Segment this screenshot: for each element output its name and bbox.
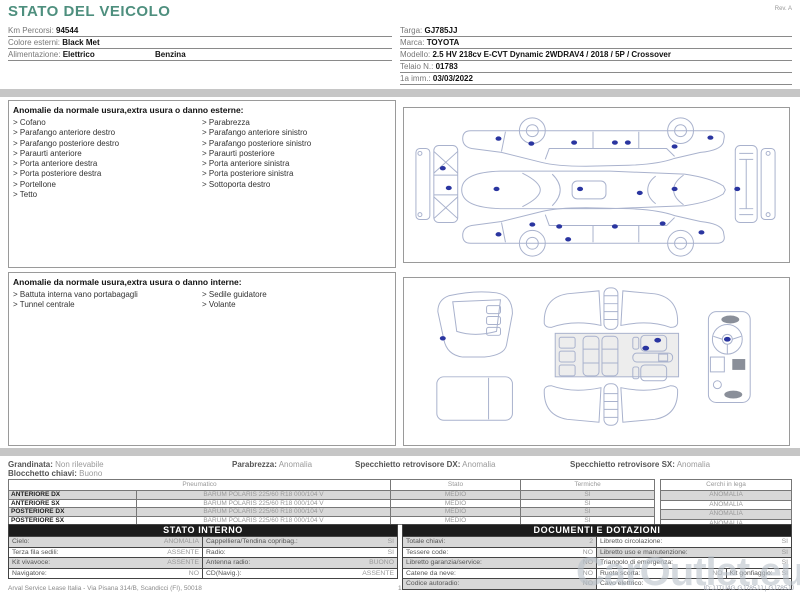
page-title: STATO DEL VEICOLO xyxy=(8,3,170,20)
key-lock-field: Blocchetto chiavi: Buono xyxy=(8,469,102,478)
parabrezza-field: Parabrezza: Anomalia xyxy=(232,460,312,469)
column-header-pneumatico: Pneumatico xyxy=(9,480,391,490)
first-registration-value: 03/03/2022 xyxy=(433,74,473,83)
interior-anomalies-left-column: Battuta interna vano portabagagli Tunnel… xyxy=(13,290,202,311)
footer-page-number: 1 xyxy=(398,585,402,592)
anomaly-item: Sottoporta destro xyxy=(202,180,352,190)
tire-row: POSTERIORE SX BARUM POLARIS 225/60 R18 0… xyxy=(9,516,654,525)
alloy-wheels-table: Cerchi in lega ANOMALIA ANOMALIA ANOMALI… xyxy=(660,479,792,529)
column-header-cerchi: Cerchi in lega xyxy=(661,480,791,490)
tire-row: POSTERIORE DX BARUM POLARIS 225/60 R18 0… xyxy=(9,507,654,516)
footer-document-id: ID:JJTU4G GJ785JJ | GJ785JJ xyxy=(703,585,794,592)
interior-anomalies-title: Anomalie da normale usura,extra usura o … xyxy=(9,273,395,290)
km-row: Km Percorsi: 94544 xyxy=(8,25,392,37)
color-value: Black Met xyxy=(62,38,99,47)
tire-table: Pneumatico Stato Termiche ANTERIORE DX B… xyxy=(8,479,655,525)
tire-row: ANTERIORE DX BARUM POLARIS 225/60 R18 00… xyxy=(9,490,654,499)
plate-row: Targa: GJ785JJ xyxy=(400,25,792,37)
anomaly-item: Parafango anteriore destro xyxy=(13,128,163,138)
footer-company: Arval Service Lease Italia - Via Pisana … xyxy=(8,585,202,592)
first-registration-label: 1a imm.: xyxy=(400,74,431,83)
column-header-termiche: Termiche xyxy=(521,480,654,490)
wheel-status-cell: ANOMALIA xyxy=(661,490,791,500)
anomaly-item: Portellone xyxy=(13,180,163,190)
documents-row: Totale chiavi:2 Libretto circolazione:SI xyxy=(403,536,791,547)
anomaly-item: Parafango posteriore sinistro xyxy=(202,139,352,149)
km-label: Km Percorsi: xyxy=(8,26,54,35)
fuel-row: Alimentazione: Elettrico Benzina xyxy=(8,49,392,61)
anomaly-item: Porta anteriore sinistra xyxy=(202,159,352,169)
tire-table-header: Pneumatico Stato Termiche xyxy=(9,480,654,490)
first-registration-row: 1a imm.: 03/03/2022 xyxy=(400,73,792,85)
grandinata-field: Grandinata: Non rilevabile xyxy=(8,460,104,469)
fuel-value-1: Elettrico xyxy=(63,50,95,59)
section-divider-bar xyxy=(0,89,800,97)
interior-status-row: Navigatore:NO CD(Navig.):ASSENTE xyxy=(9,568,397,579)
interior-status-row: Kit vivavoce:ASSENTE Antenna radio:BUONO xyxy=(9,557,397,568)
anomaly-item: Tetto xyxy=(13,190,163,200)
model-row: Modello: 2.5 HV 218cv E-CVT Dynamic 2WDR… xyxy=(400,49,792,61)
anomaly-item: Porta posteriore sinistra xyxy=(202,169,352,179)
plate-value: GJ785JJ xyxy=(424,26,457,35)
interior-damage-diagram xyxy=(404,278,789,445)
wheel-status-cell: ANOMALIA xyxy=(661,509,791,519)
documents-equipment-title: DOCUMENTI E DOTAZIONI xyxy=(403,525,791,536)
brand-value: TOYOTA xyxy=(427,38,460,47)
interior-status-table: STATO INTERNO Cielo:ANOMALIA Cappelliera… xyxy=(8,524,398,579)
anomaly-item: Battuta interna vano portabagagli xyxy=(13,290,163,300)
exterior-anomalies-panel: Anomalie da normale usura,extra usura o … xyxy=(8,100,396,268)
chassis-label: Telaio N.: xyxy=(400,62,433,71)
mirror-dx-field: Specchietto retrovisore DX: Anomalia xyxy=(355,460,496,469)
color-label: Colore esterni: xyxy=(8,38,60,47)
interior-status-row: Cielo:ANOMALIA Cappelliera/Tendina copri… xyxy=(9,536,397,547)
anomaly-item: Volante xyxy=(202,300,352,310)
fuel-label: Alimentazione: xyxy=(8,50,60,59)
exterior-damage-diagram xyxy=(404,108,789,262)
exterior-damage-diagram-panel xyxy=(403,107,790,263)
exterior-anomalies-right-column: Parabrezza Parafango anteriore sinistro … xyxy=(202,118,391,200)
plate-label: Targa: xyxy=(400,26,422,35)
vehicle-summary-right: Targa: GJ785JJ Marca: TOYOTA Modello: 2.… xyxy=(400,25,792,85)
anomaly-item: Paraurti posteriore xyxy=(202,149,352,159)
exterior-anomalies-title: Anomalie da normale usura,extra usura o … xyxy=(9,101,395,118)
km-value: 94544 xyxy=(56,26,78,35)
interior-anomalies-panel: Anomalie da normale usura,extra usura o … xyxy=(8,272,396,446)
interior-status-row: Terza fila sedili:ASSENTE Radio:SI xyxy=(9,547,397,558)
mirror-sx-field: Specchietto retrovisore SX: Anomalia xyxy=(570,460,710,469)
vehicle-report-page: STATO DEL VEICOLO Rev. A Km Percorsi: 94… xyxy=(0,0,800,600)
anomaly-item: Tunnel centrale xyxy=(13,300,163,310)
model-label: Modello: xyxy=(400,50,430,59)
brand-row: Marca: TOYOTA xyxy=(400,37,792,49)
interior-status-title: STATO INTERNO xyxy=(9,525,397,536)
anomaly-item: Parabrezza xyxy=(202,118,352,128)
brand-label: Marca: xyxy=(400,38,424,47)
anomaly-item: Porta posteriore destra xyxy=(13,169,163,179)
column-header-stato: Stato xyxy=(391,480,521,490)
anomaly-item: Parafango anteriore sinistro xyxy=(202,128,352,138)
anomaly-item: Parafango posteriore destro xyxy=(13,139,163,149)
fuel-value-2: Benzina xyxy=(155,50,186,59)
interior-anomalies-right-column: Sedile guidatore Volante xyxy=(202,290,391,311)
revision-label: Rev. A xyxy=(775,6,792,12)
condition-summary-line: Grandinata: Non rilevabile Parabrezza: A… xyxy=(8,460,792,478)
section-divider-bar xyxy=(0,448,800,456)
anomaly-item: Porta anteriore destra xyxy=(13,159,163,169)
color-row: Colore esterni: Black Met xyxy=(8,37,392,49)
vehicle-summary-left: Km Percorsi: 94544 Colore esterni: Black… xyxy=(8,25,392,61)
tire-row: ANTERIORE SX BARUM POLARIS 225/60 R18 00… xyxy=(9,499,654,508)
anomaly-item: Sedile guidatore xyxy=(202,290,352,300)
interior-damage-diagram-panel xyxy=(403,277,790,446)
exterior-anomalies-left-column: Cofano Parafango anteriore destro Parafa… xyxy=(13,118,202,200)
model-value: 2.5 HV 218cv E-CVT Dynamic 2WDRAV4 / 201… xyxy=(432,50,670,59)
chassis-value: 01783 xyxy=(436,62,458,71)
anomaly-item: Cofano xyxy=(13,118,163,128)
wheel-status-cell: ANOMALIA xyxy=(661,500,791,510)
anomaly-item: Paraurti anteriore xyxy=(13,149,163,159)
chassis-row: Telaio N.: 01783 xyxy=(400,61,792,73)
